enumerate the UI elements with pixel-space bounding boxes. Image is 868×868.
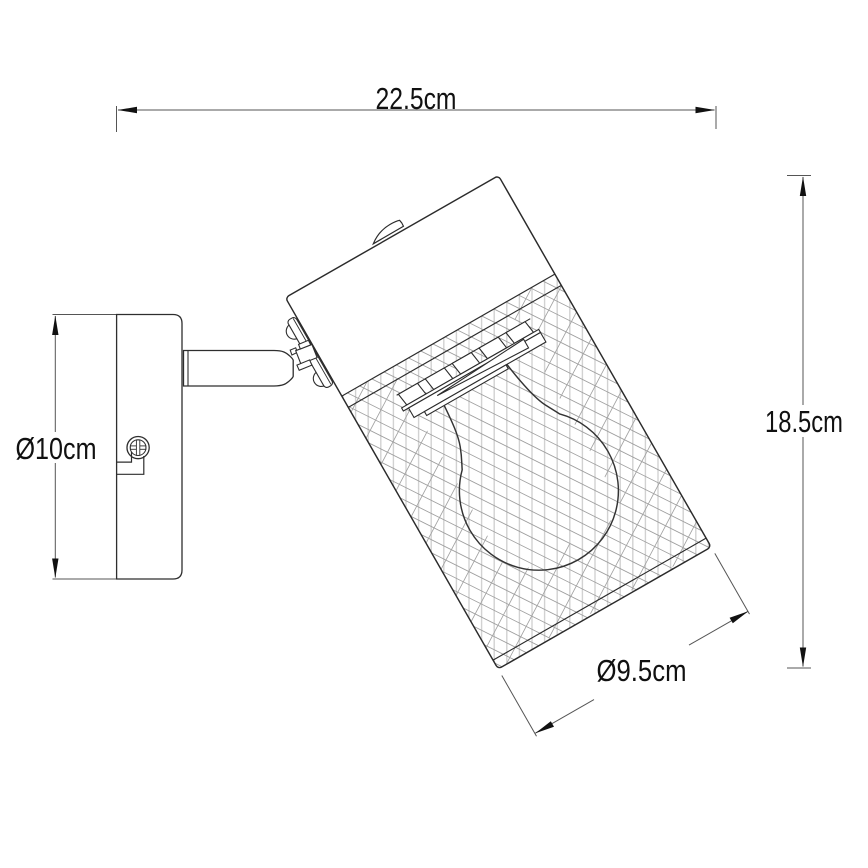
svg-text:Ø10cm: Ø10cm [16, 431, 97, 466]
svg-text:Ø9.5cm: Ø9.5cm [597, 653, 687, 688]
svg-text:18.5cm: 18.5cm [765, 404, 843, 439]
svg-text:22.5cm: 22.5cm [376, 81, 457, 116]
